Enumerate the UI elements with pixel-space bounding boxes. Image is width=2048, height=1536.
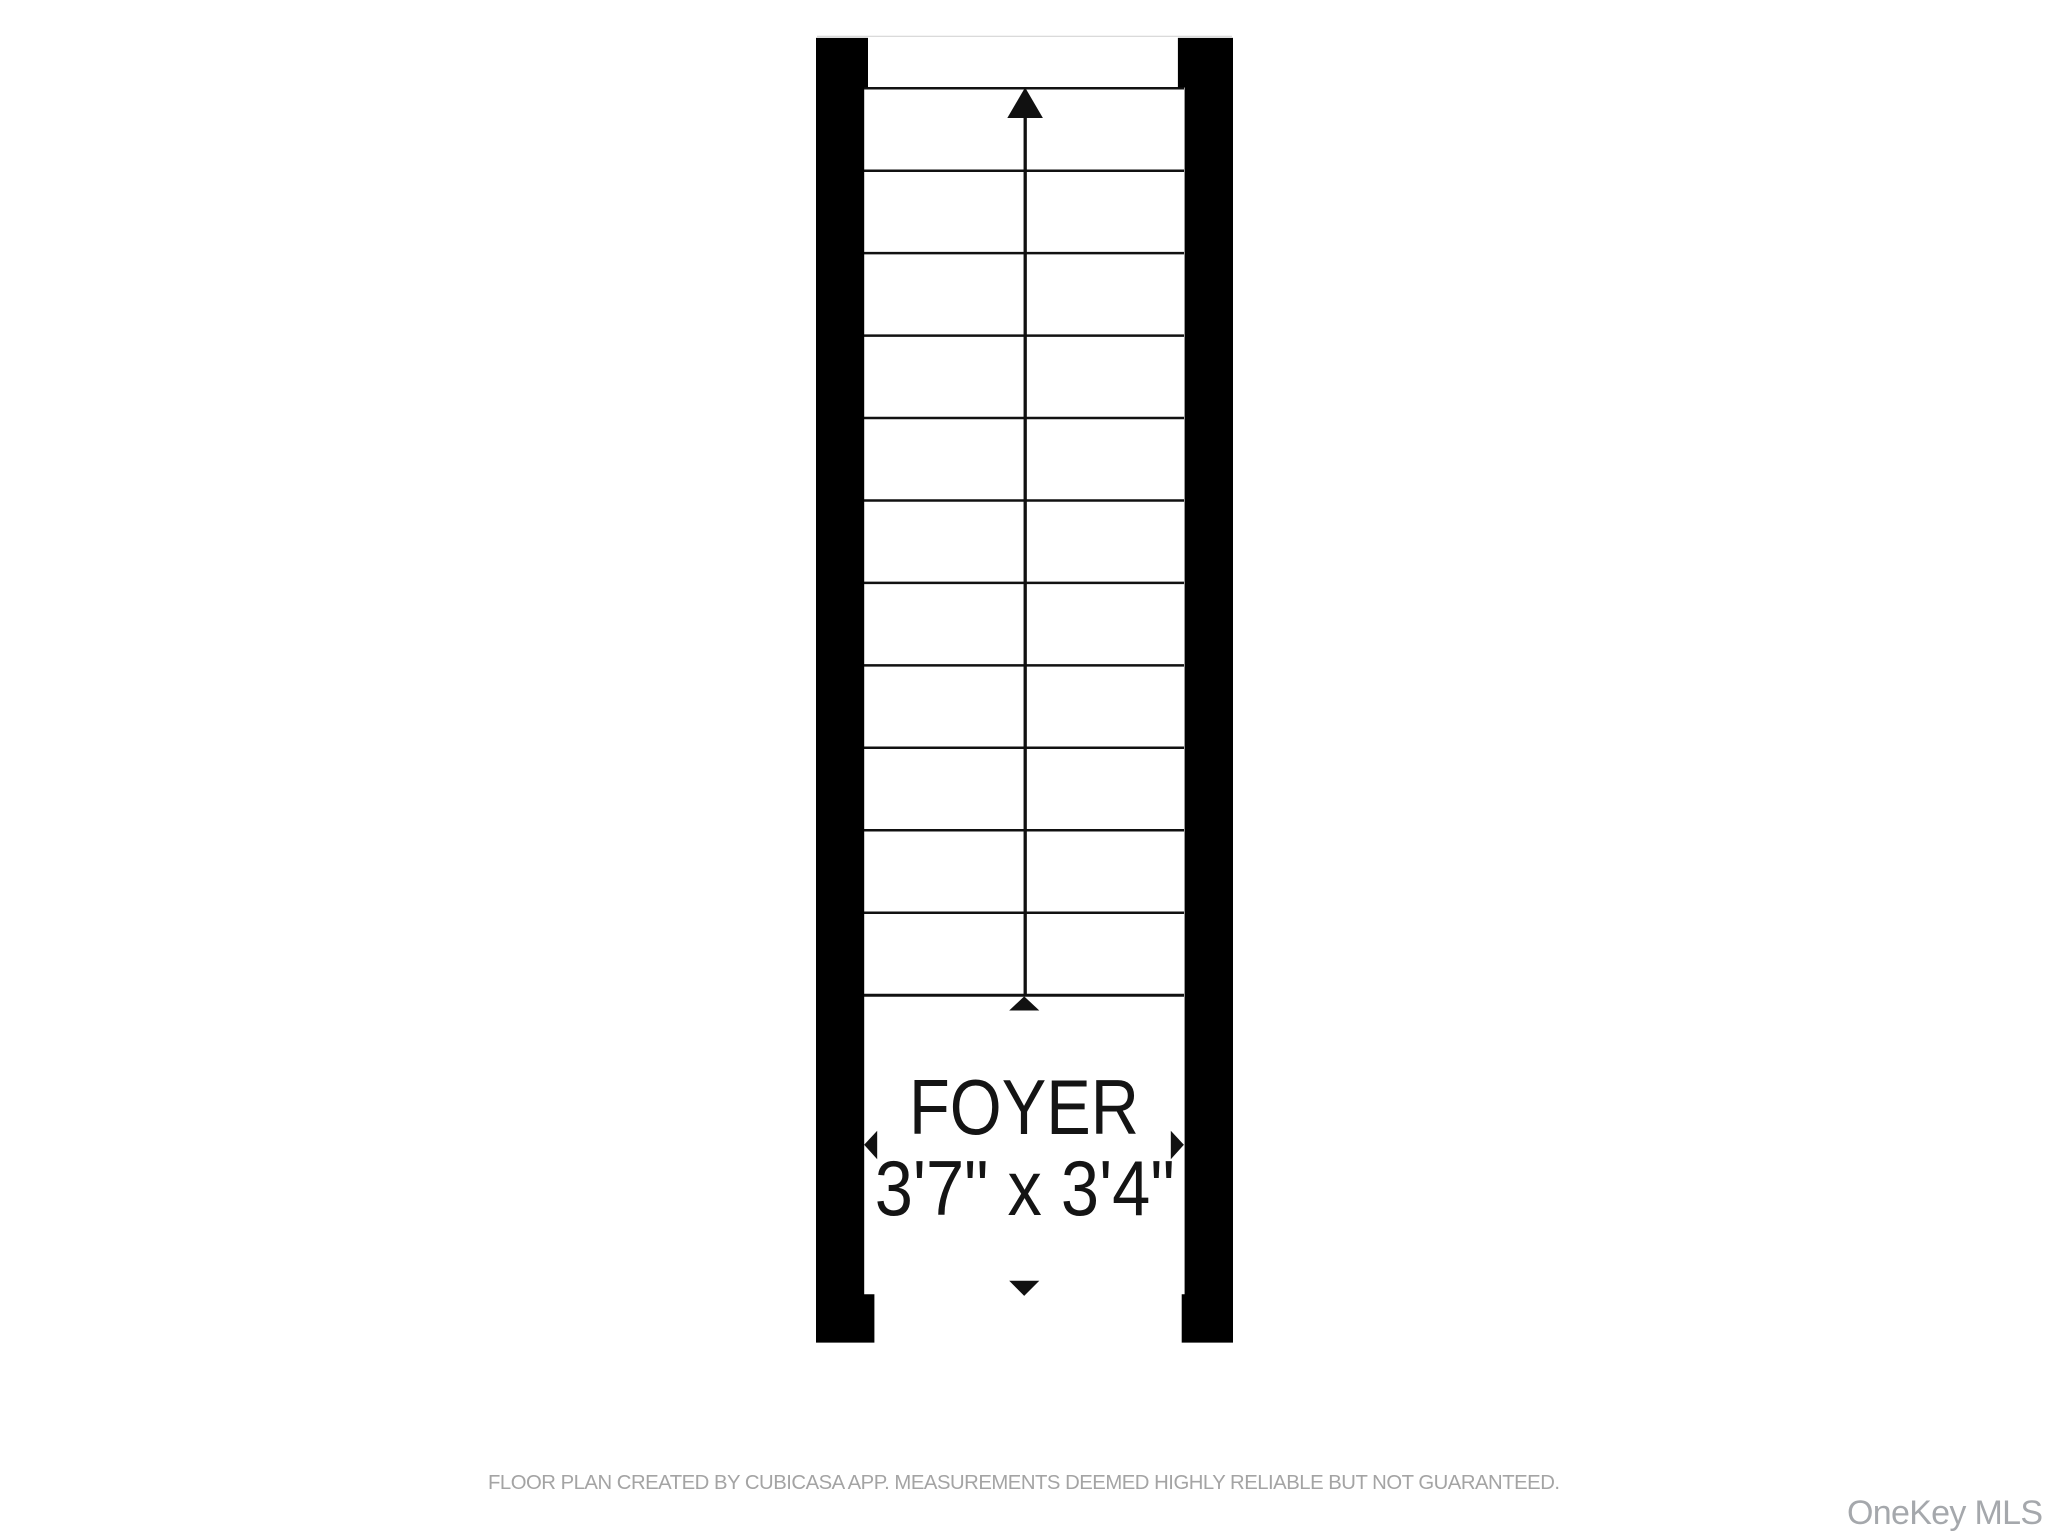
- svg-text:FLOOR PLAN CREATED BY CUBICASA: FLOOR PLAN CREATED BY CUBICASA APP. MEAS…: [488, 1472, 1560, 1494]
- svg-text:FOYER: FOYER: [909, 1063, 1139, 1151]
- svg-text:OneKey MLS: OneKey MLS: [1847, 1494, 2043, 1532]
- svg-text:3'7" x 3'4": 3'7" x 3'4": [875, 1144, 1175, 1232]
